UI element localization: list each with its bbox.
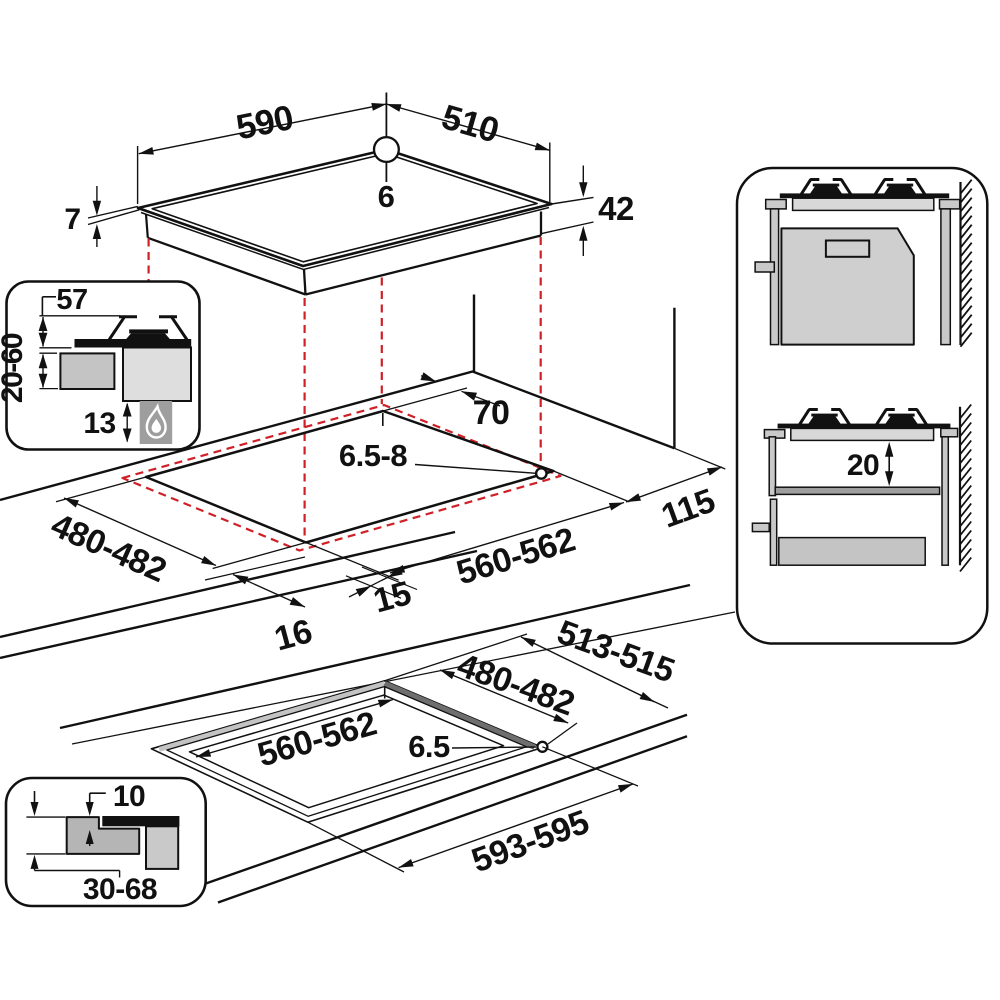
svg-text:6.5-8: 6.5-8 — [339, 438, 407, 473]
svg-text:70: 70 — [473, 394, 510, 432]
svg-text:30-68: 30-68 — [83, 873, 157, 906]
svg-text:6.5: 6.5 — [408, 729, 450, 764]
svg-text:15: 15 — [369, 574, 414, 620]
svg-text:42: 42 — [598, 190, 634, 227]
svg-text:10: 10 — [113, 780, 145, 813]
svg-text:560-562: 560-562 — [452, 521, 579, 593]
svg-text:13: 13 — [83, 407, 115, 440]
svg-text:57: 57 — [56, 284, 87, 316]
svg-text:593-595: 593-595 — [467, 803, 594, 880]
svg-text:7: 7 — [64, 203, 80, 236]
svg-text:510: 510 — [437, 97, 502, 150]
svg-text:6: 6 — [378, 179, 395, 214]
svg-text:20: 20 — [847, 449, 879, 482]
svg-text:20-60: 20-60 — [0, 333, 29, 403]
svg-text:115: 115 — [657, 482, 720, 536]
svg-text:480-482: 480-482 — [45, 506, 171, 590]
svg-text:480-482: 480-482 — [452, 646, 579, 723]
svg-text:513-515: 513-515 — [552, 613, 679, 690]
svg-text:590: 590 — [233, 98, 297, 148]
svg-text:16: 16 — [270, 612, 315, 658]
